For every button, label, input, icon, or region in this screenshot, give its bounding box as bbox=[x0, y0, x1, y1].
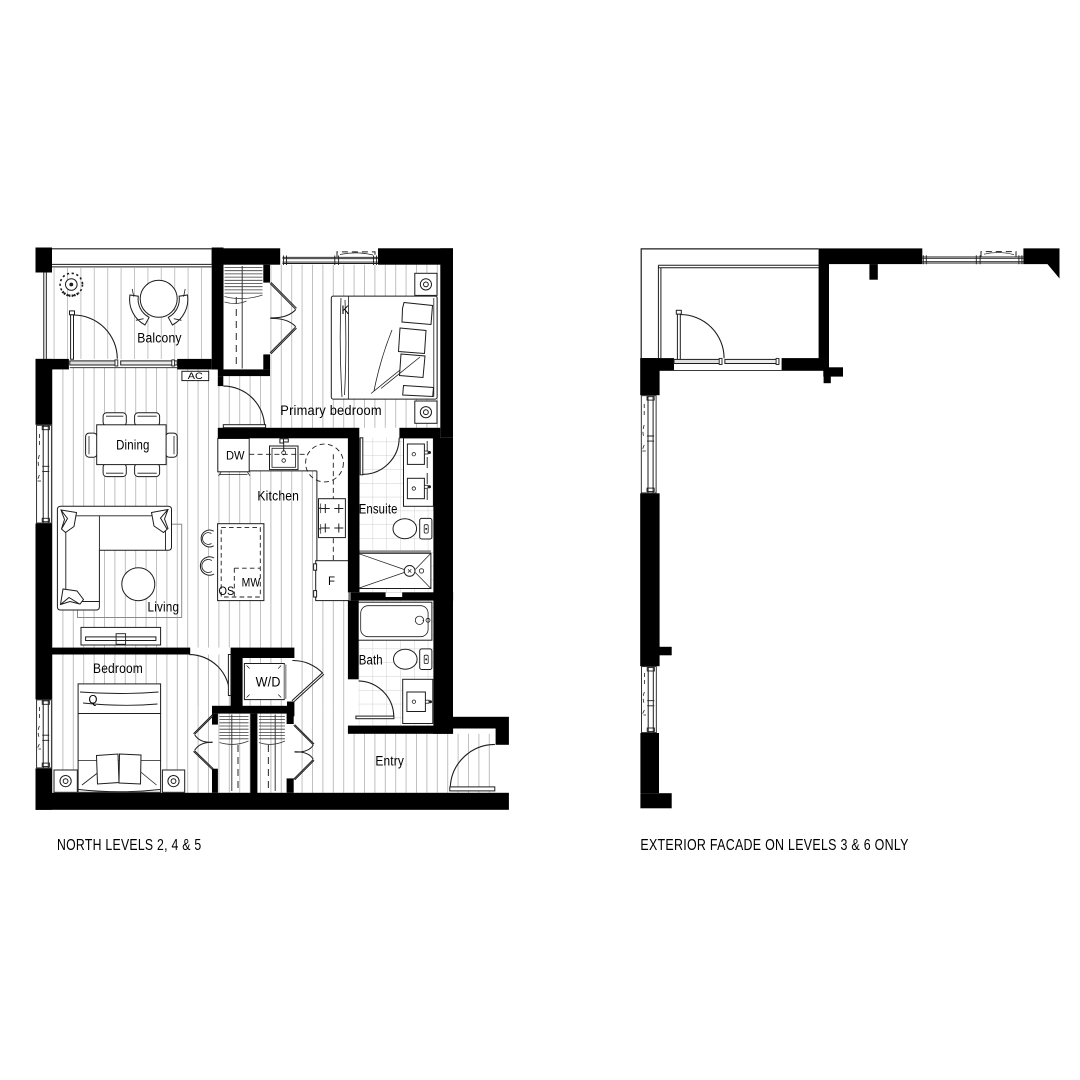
svg-text:NORTH LEVELS 2, 4 & 5: NORTH LEVELS 2, 4 & 5 bbox=[57, 837, 202, 854]
svg-text:Entry: Entry bbox=[375, 754, 404, 769]
svg-text:Primary bedroom: Primary bedroom bbox=[280, 403, 382, 418]
svg-text:K: K bbox=[341, 305, 349, 317]
svg-text:Living: Living bbox=[148, 599, 180, 614]
svg-text:Ensuite: Ensuite bbox=[359, 501, 398, 516]
svg-text:EXTERIOR FACADE ON LEVELS 3 &: EXTERIOR FACADE ON LEVELS 3 & 6 ONLY bbox=[640, 837, 908, 854]
svg-text:Balcony: Balcony bbox=[137, 330, 182, 345]
svg-text:MW: MW bbox=[242, 578, 261, 590]
svg-text:DW: DW bbox=[226, 451, 245, 463]
svg-text:W/D: W/D bbox=[256, 674, 281, 689]
svg-text:Q: Q bbox=[89, 695, 98, 707]
svg-text:Bath: Bath bbox=[359, 653, 383, 668]
svg-text:OS: OS bbox=[219, 586, 235, 598]
svg-text:F: F bbox=[328, 576, 335, 588]
svg-text:Bedroom: Bedroom bbox=[93, 661, 143, 676]
svg-text:Kitchen: Kitchen bbox=[257, 489, 299, 504]
svg-text:AC: AC bbox=[188, 371, 203, 382]
svg-text:Dining: Dining bbox=[116, 437, 150, 452]
